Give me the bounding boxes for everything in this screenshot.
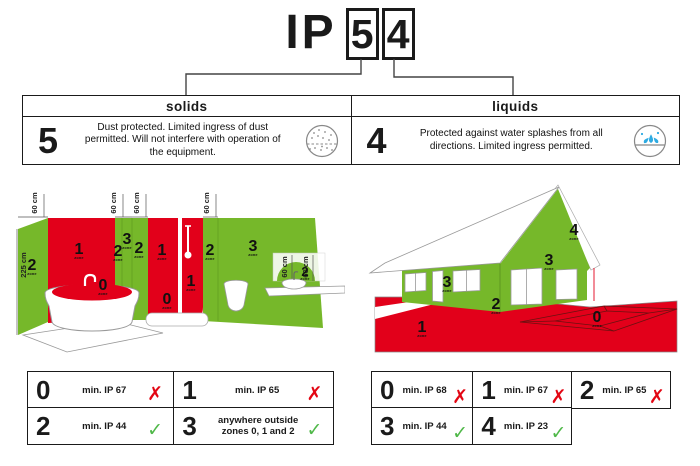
svg-text:zone: zone	[186, 288, 195, 292]
svg-text:zone: zone	[442, 289, 451, 293]
bathroom-zones-illustration: 60 cm 60 cm 60 cm 60 cm 225 cm 60 cm 60 …	[15, 182, 345, 365]
svg-text:zone: zone	[491, 311, 500, 315]
width-label-strip-c: 60 cm	[132, 192, 141, 214]
liquids-section: liquids 4 Protected against water splash…	[352, 96, 680, 164]
shower-tray	[146, 313, 208, 326]
svg-text:zone: zone	[157, 257, 166, 261]
liquids-digit: 4	[352, 120, 402, 162]
fail-mark-icon: ✗	[649, 388, 665, 407]
width-label-strip-d: 60 cm	[202, 192, 211, 214]
house-zones-illustration: 1 zone 0 zone 2 zone 3 zone 3 zone 4 zon…	[360, 175, 690, 360]
liquids-header: liquids	[352, 96, 680, 117]
svg-text:zone: zone	[569, 237, 578, 241]
pass-mark-icon: ✓	[147, 421, 163, 440]
svg-text:zone: zone	[134, 255, 143, 259]
width-label-strip-a: 60 cm	[109, 192, 118, 214]
liquids-description: Protected against water splashes from al…	[402, 128, 622, 153]
req-cell-bathroom-zone-3: 3 anywhere outside zones 0, 1 and 2 ✓	[173, 407, 334, 445]
zone-number: 4	[481, 409, 495, 443]
bathtub-interior-zone0	[52, 284, 132, 301]
solids-section: solids 5 Dust protected. Limited ingress…	[23, 96, 352, 164]
svg-text:zone: zone	[113, 258, 122, 262]
svg-text:zone: zone	[592, 324, 601, 328]
pass-mark-icon: ✓	[550, 424, 566, 443]
pass-mark-icon: ✓	[452, 424, 468, 443]
width-label-side-wall: 60 cm	[30, 192, 39, 214]
rating-table: solids 5 Dust protected. Limited ingress…	[22, 95, 680, 165]
fail-mark-icon: ✗	[306, 385, 322, 404]
req-cell-house-zone-1: 1 min. IP 67 ✗	[472, 371, 572, 409]
requirement-text: anywhere outside zones 0, 1 and 2	[212, 415, 318, 437]
fail-mark-icon: ✗	[550, 388, 566, 407]
req-cell-house-zone-4: 4 min. IP 23 ✓	[472, 407, 572, 445]
svg-text:zone: zone	[122, 246, 131, 250]
solids-header: solids	[23, 96, 351, 117]
svg-text:zone: zone	[74, 256, 83, 260]
zone-number: 2	[580, 373, 594, 407]
page-title: IP 5 4	[0, 8, 700, 60]
solids-digit-box: 5	[346, 8, 379, 60]
water-splash-icon	[621, 123, 679, 159]
fail-mark-icon: ✗	[147, 385, 163, 404]
bathroom-requirements-table: 0 min. IP 67 ✗ 1 min. IP 65 ✗ 2 min. IP …	[27, 371, 334, 445]
zone-number: 0	[380, 373, 394, 407]
liquids-digit-box: 4	[382, 8, 415, 60]
pass-mark-icon: ✓	[306, 421, 322, 440]
dust-particles-icon	[293, 123, 351, 159]
req-cell-house-zone-2: 2 min. IP 65 ✗	[571, 371, 671, 409]
zone-number: 3	[380, 409, 394, 443]
ip-prefix: IP	[285, 8, 336, 60]
svg-text:zone: zone	[27, 272, 36, 276]
ip-rating-infographic: IP 5 4 solids 5 Dust protected. Limited …	[0, 0, 700, 466]
zone-number: 3	[182, 409, 196, 443]
req-cell-bathroom-zone-0: 0 min. IP 67 ✗	[27, 371, 175, 409]
req-cell-bathroom-zone-2: 2 min. IP 44 ✓	[27, 407, 175, 445]
req-cell-house-zone-0: 0 min. IP 68 ✗	[371, 371, 474, 409]
zone-number: 2	[36, 409, 50, 443]
svg-text:zone: zone	[544, 267, 553, 271]
zone-number: 1	[481, 373, 495, 407]
basin-width-label-1: 60 cm	[280, 256, 289, 278]
svg-text:zone: zone	[248, 253, 257, 257]
zone-number: 0	[36, 373, 50, 407]
svg-text:zone: zone	[205, 257, 214, 261]
solids-digit: 5	[23, 120, 73, 162]
req-cell-bathroom-zone-1: 1 min. IP 65 ✗	[173, 371, 334, 409]
req-cell-house-zone-3: 3 min. IP 44 ✓	[371, 407, 474, 445]
house-requirements-table: 0 min. IP 68 ✗ 1 min. IP 67 ✗ 2 min. IP …	[371, 371, 671, 445]
basin-shelf	[265, 286, 345, 296]
shower-right-panel-zone1	[182, 218, 203, 320]
connector-lines	[0, 58, 700, 98]
svg-text:zone: zone	[98, 292, 107, 296]
fail-mark-icon: ✗	[452, 388, 468, 407]
svg-text:zone: zone	[162, 306, 171, 310]
solids-description: Dust protected. Limited ingress of dust …	[73, 122, 293, 160]
svg-text:zone: zone	[417, 334, 426, 338]
svg-text:zone: zone	[300, 277, 309, 281]
zone-number: 1	[182, 373, 196, 407]
